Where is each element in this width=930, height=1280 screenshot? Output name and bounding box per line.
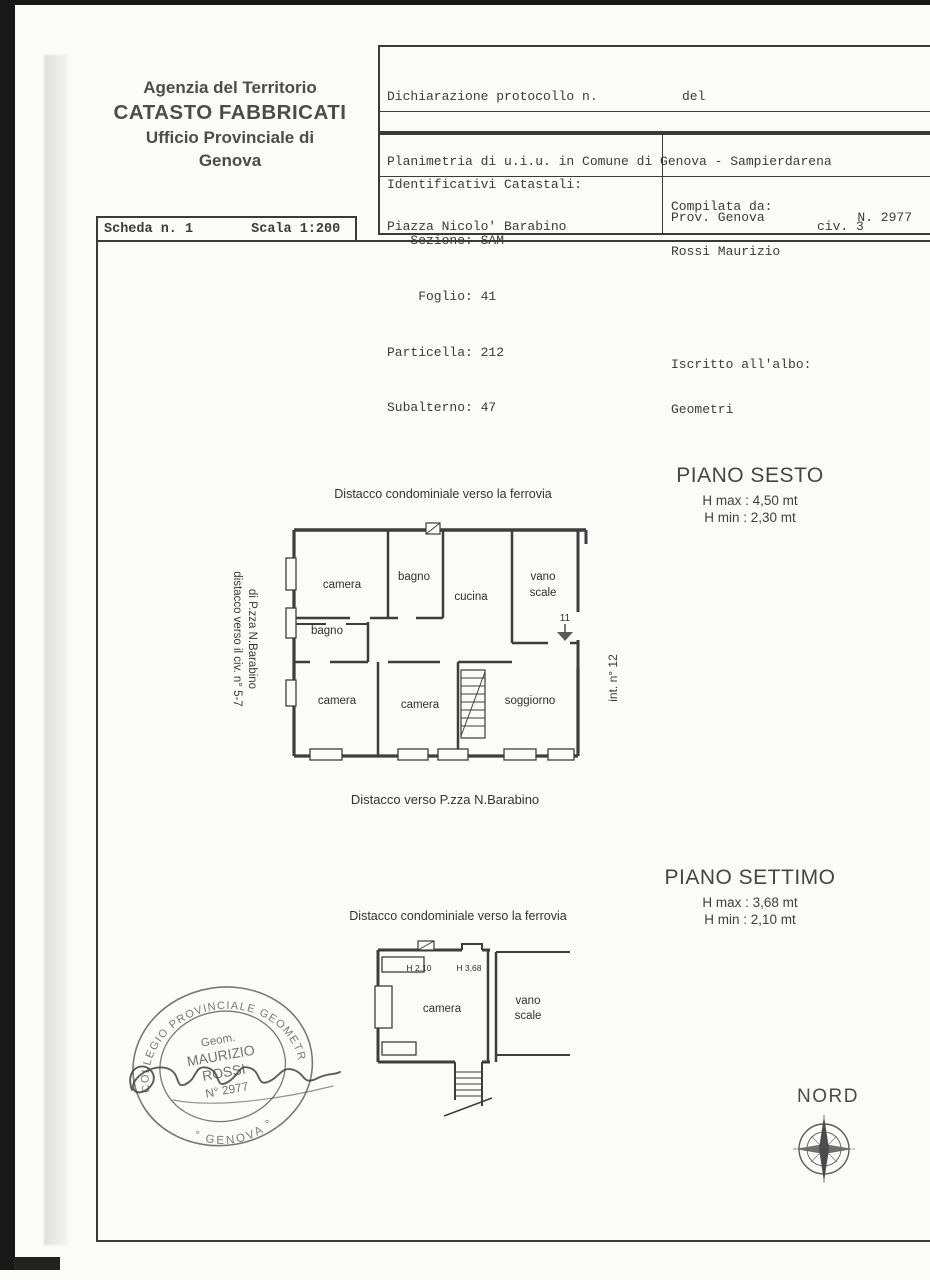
compass-graphics bbox=[793, 1115, 855, 1183]
floor6-left-caption-line2: di P.zza N.Barabino bbox=[246, 553, 258, 725]
signature bbox=[118, 1038, 353, 1118]
floor6-hmin: H min : 2,30 mt bbox=[660, 510, 840, 527]
agency-header: Agenzia del Territorio CATASTO FABBRICAT… bbox=[110, 76, 350, 172]
floor6-top-caption: Distacco condominiale verso la ferrovia bbox=[287, 487, 599, 501]
room-label-scale7: scale bbox=[515, 1010, 542, 1022]
compass-rose bbox=[791, 1112, 857, 1188]
floor7-staircase-symbol bbox=[444, 1062, 492, 1116]
room-label-soggiorno: soggiorno bbox=[505, 695, 556, 707]
scan-binding-shadow bbox=[44, 55, 68, 1245]
office-city: Genova bbox=[110, 149, 350, 172]
scanned-cadastral-sheet: Agenzia del Territorio CATASTO FABBRICAT… bbox=[0, 0, 930, 1280]
floor7-title: PIANO SETTIMO bbox=[655, 866, 845, 890]
room-label-scale: scale bbox=[530, 587, 557, 599]
floor6-walls bbox=[286, 523, 586, 760]
floor6-hmax: H max : 4,50 mt bbox=[660, 493, 840, 510]
sheet-number-box: Scheda n. 1 Scala 1:200 bbox=[96, 216, 357, 242]
room-label-bagno-top: bagno bbox=[398, 571, 430, 583]
room-label-camera7: camera bbox=[423, 1003, 462, 1015]
signature-strokes bbox=[130, 1066, 340, 1103]
compiler-cell: Compilata da: Rossi Maurizio Iscritto al… bbox=[663, 133, 930, 233]
office-line: Ufficio Provinciale di bbox=[110, 126, 350, 149]
height-label-210: H 2,10 bbox=[406, 963, 431, 973]
identifiers-cell: Identificativi Catastali: Sezione: SAM F… bbox=[380, 133, 663, 233]
protocol-row-1: Dichiarazione protocollo n. del bbox=[380, 83, 930, 112]
room-label-camera-bm: camera bbox=[401, 699, 440, 711]
scan-edge-foot bbox=[14, 1257, 60, 1270]
floor6-shaft-symbol bbox=[426, 523, 440, 534]
floor7-hmin: H min : 2,10 mt bbox=[655, 912, 845, 929]
floor6-windows-left bbox=[286, 558, 296, 706]
floor7-shaft-symbol bbox=[418, 941, 434, 950]
registration-number: N. 2977 bbox=[857, 211, 912, 225]
floor6-title-block: PIANO SESTO H max : 4,50 mt H min : 2,30… bbox=[660, 464, 840, 526]
protocol-box: Dichiarazione protocollo n. del Planimet… bbox=[378, 45, 930, 135]
north-label: NORD bbox=[788, 1086, 868, 1108]
protocol-label: Dichiarazione protocollo n. bbox=[387, 83, 598, 111]
registry-name: CATASTO FABBRICATI bbox=[110, 100, 350, 126]
room-label-vano7: vano bbox=[516, 995, 541, 1007]
identifiers-title: Identificativi Catastali: bbox=[387, 176, 662, 195]
scan-edge-left bbox=[0, 0, 15, 1270]
floor6-left-caption-line1: distacco verso il civ. n° 5-7 bbox=[231, 553, 243, 725]
protocol-del-label: del bbox=[682, 83, 705, 111]
floor6-bottom-caption: Distacco verso P.zza N.Barabino bbox=[300, 792, 590, 807]
floor6-title: PIANO SESTO bbox=[660, 464, 840, 488]
height-label-368: H 3,68 bbox=[456, 963, 481, 973]
sheet-number: Scheda n. 1 bbox=[104, 222, 193, 237]
floor6-plan-svg: camera bagno cucina vano scale bagno cam… bbox=[280, 520, 600, 780]
door-11-number: 11 bbox=[560, 613, 571, 624]
scan-edge-top bbox=[0, 0, 930, 5]
floor6-door-11-symbol bbox=[557, 624, 573, 641]
province-label: Prov. Genova bbox=[671, 211, 765, 225]
room-label-cucina: cucina bbox=[454, 591, 488, 603]
floor6-staircase-symbol bbox=[461, 670, 485, 738]
floor6-room-labels: camera bagno cucina vano scale bagno cam… bbox=[311, 571, 571, 711]
room-label-bagno-mid: bagno bbox=[311, 625, 343, 637]
agency-name: Agenzia del Territorio bbox=[110, 76, 350, 100]
room-label-vano: vano bbox=[531, 571, 556, 583]
floor7-labels: H 2,10 H 3,68 camera vano scale bbox=[406, 963, 541, 1022]
floor7-hmax: H max : 3,68 mt bbox=[655, 895, 845, 912]
floor6-right-caption: int. n° 12 bbox=[606, 647, 620, 709]
cadastral-identifiers-box: Identificativi Catastali: Sezione: SAM F… bbox=[378, 131, 930, 235]
room-label-camera-top: camera bbox=[323, 579, 362, 591]
room-label-camera-bl: camera bbox=[318, 695, 357, 707]
floor7-plan-svg: H 2,10 H 3,68 camera vano scale bbox=[370, 940, 570, 1125]
floor7-title-block: PIANO SETTIMO H max : 3,68 mt H min : 2,… bbox=[655, 866, 845, 928]
floor7-top-caption: Distacco condominiale verso la ferrovia bbox=[342, 909, 574, 923]
scale-label: Scala 1:200 bbox=[251, 222, 340, 237]
